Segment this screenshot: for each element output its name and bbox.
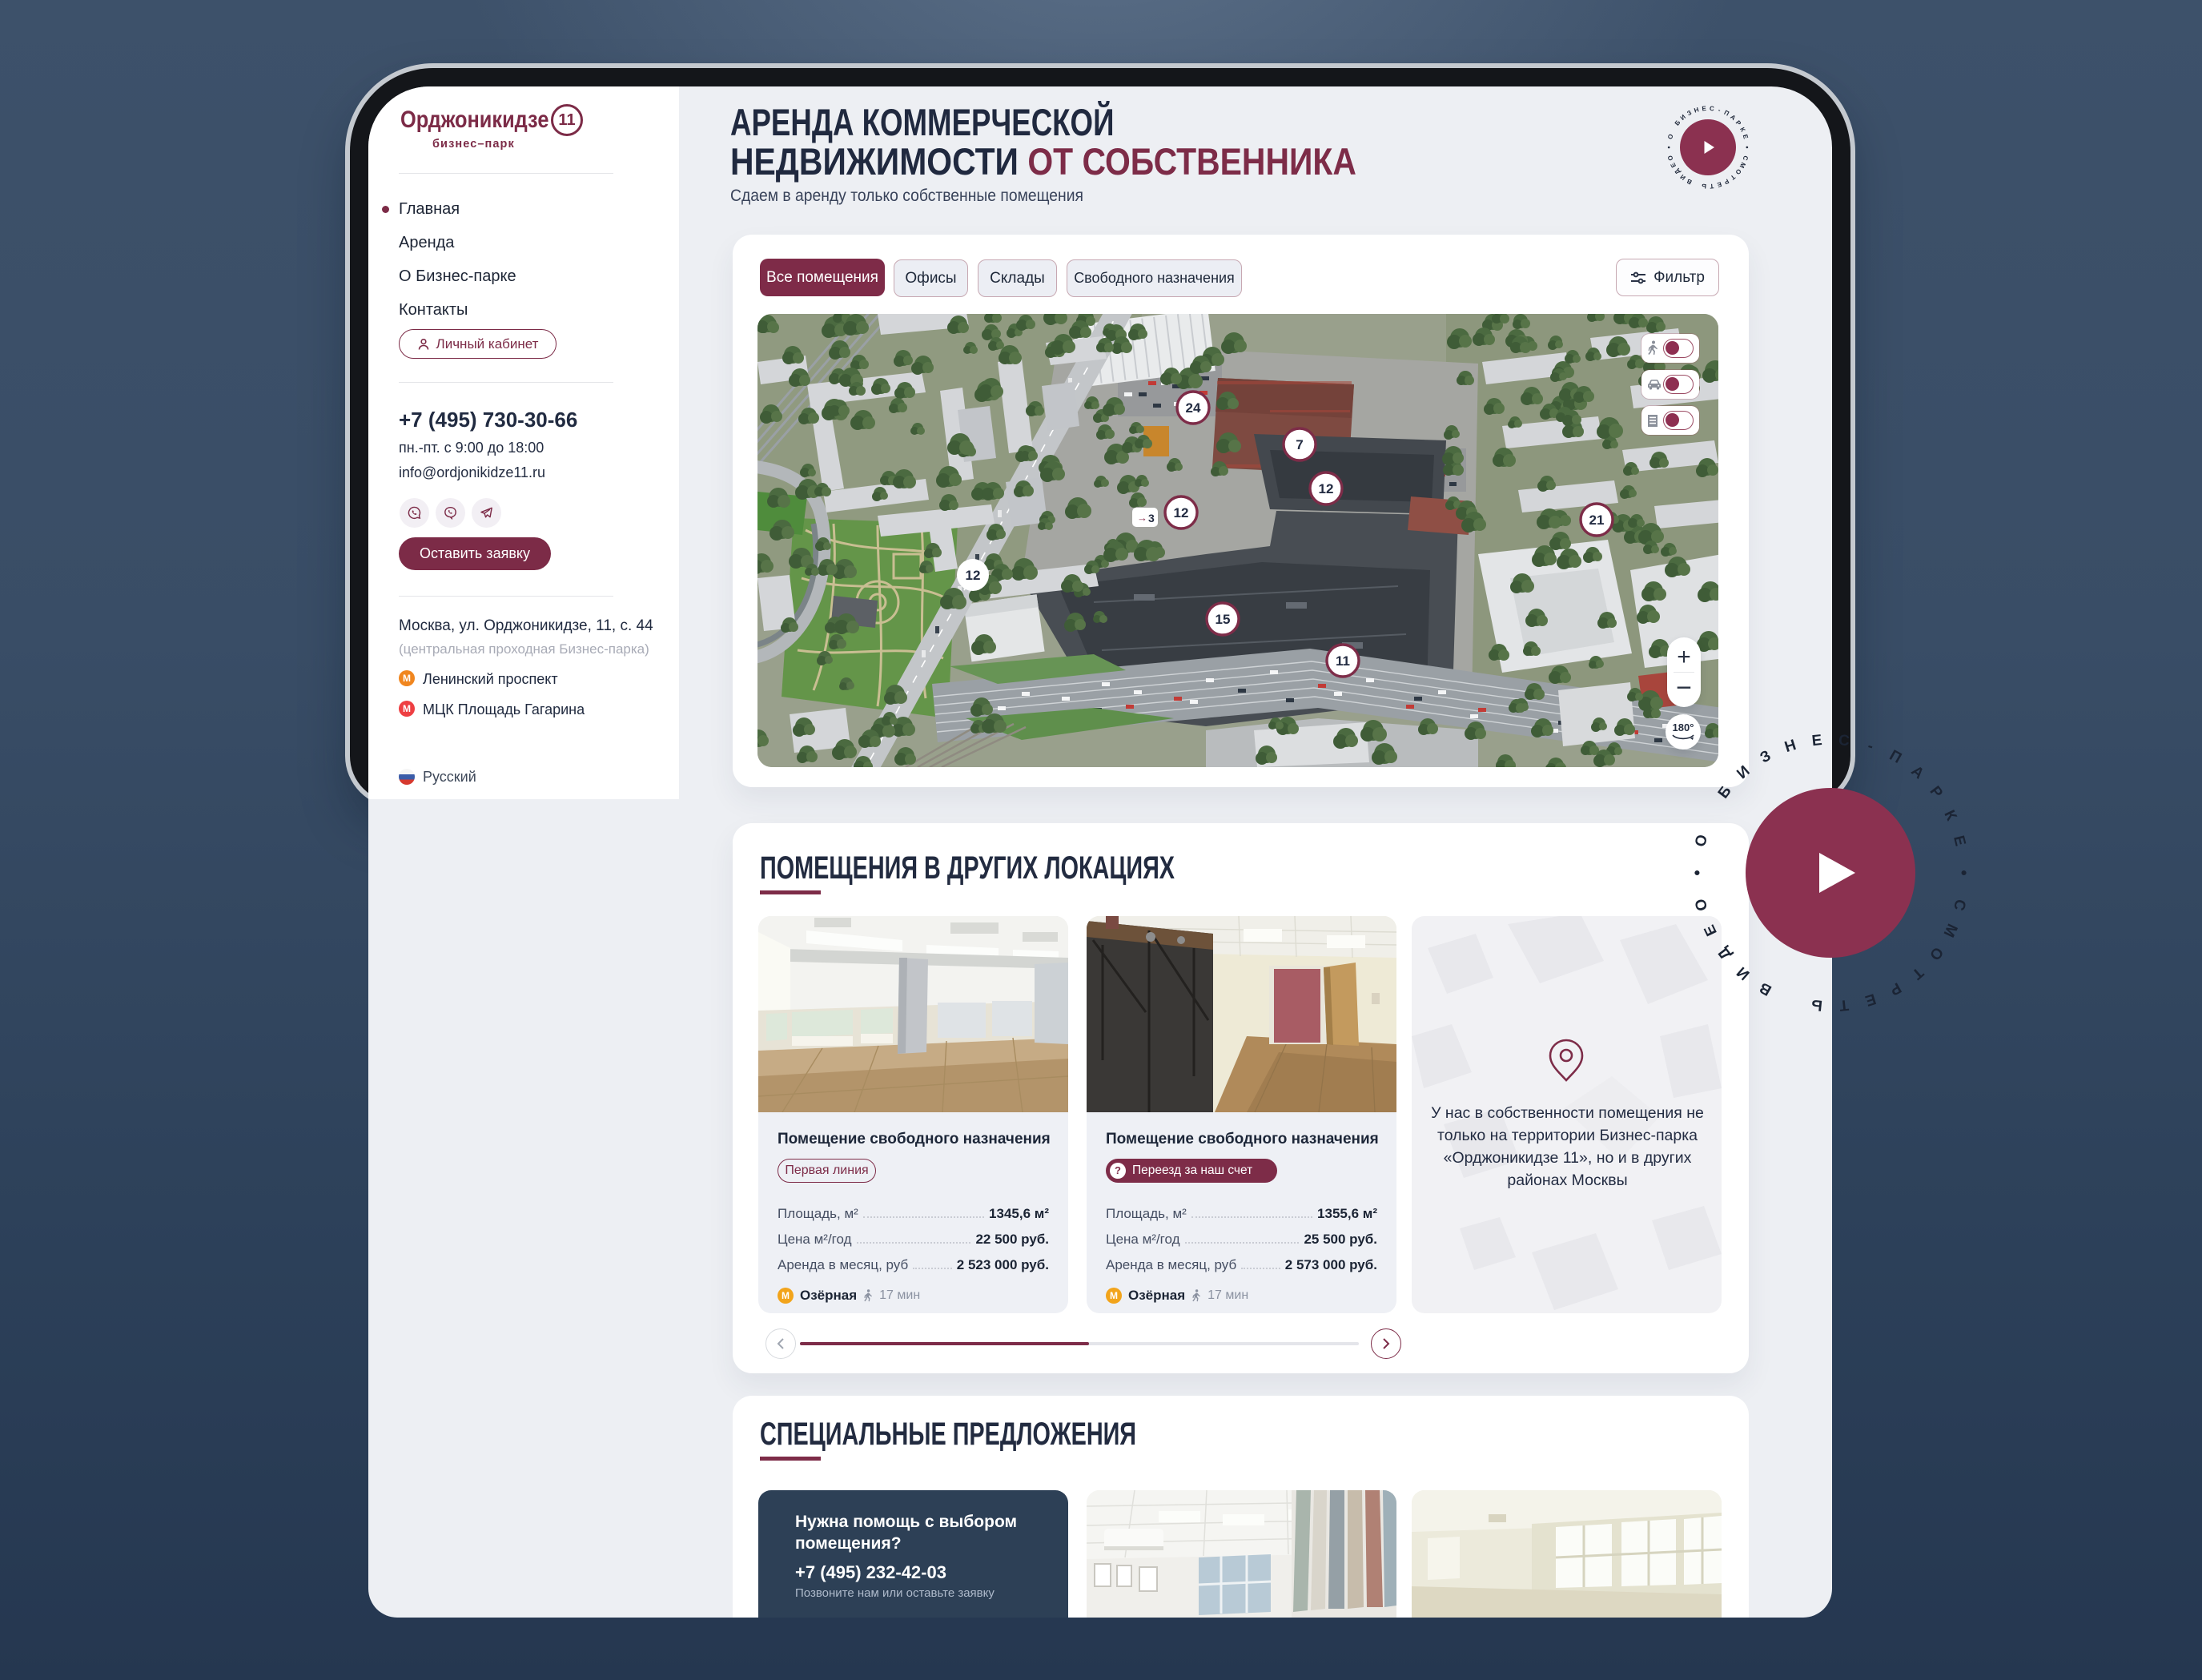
svg-text:С: С bbox=[1742, 155, 1750, 161]
svg-text:Е: Е bbox=[1716, 180, 1722, 188]
svg-text:О: О bbox=[1692, 833, 1711, 848]
svg-text:→: → bbox=[1137, 512, 1147, 524]
svg-text:12: 12 bbox=[966, 568, 981, 583]
svg-text:И: И bbox=[1679, 173, 1687, 182]
svg-text:Е: Е bbox=[1669, 161, 1678, 168]
svg-text:•: • bbox=[1689, 870, 1707, 875]
svg-text:Б: Б bbox=[1674, 119, 1682, 127]
svg-text:Д: Д bbox=[1715, 943, 1735, 963]
svg-text:24: 24 bbox=[1186, 400, 1201, 416]
svg-text:О: О bbox=[1734, 167, 1742, 175]
svg-text:•: • bbox=[1954, 870, 1972, 875]
svg-text:21: 21 bbox=[1589, 512, 1605, 528]
svg-text:Е: Е bbox=[1863, 990, 1878, 1009]
svg-text:П: П bbox=[1723, 109, 1731, 118]
svg-text:А: А bbox=[1908, 762, 1927, 782]
svg-text:Е: Е bbox=[1742, 134, 1750, 140]
svg-text:И: И bbox=[1734, 963, 1753, 983]
svg-text:М: М bbox=[1939, 921, 1960, 939]
svg-text:О: О bbox=[1666, 155, 1674, 161]
svg-text:-: - bbox=[1718, 107, 1722, 114]
svg-text:З: З bbox=[1686, 109, 1693, 117]
svg-text:П: П bbox=[1887, 747, 1904, 767]
svg-text:С: С bbox=[1710, 105, 1715, 113]
svg-text:Т: Т bbox=[1729, 173, 1737, 181]
svg-text:Ь: Ь bbox=[1810, 996, 1823, 1014]
svg-text:В: В bbox=[1757, 979, 1774, 999]
svg-text:Р: Р bbox=[1734, 119, 1743, 127]
svg-text:Е: Е bbox=[1702, 105, 1707, 113]
svg-text:Н: Н bbox=[1694, 106, 1700, 114]
svg-text:3: 3 bbox=[1148, 512, 1155, 524]
svg-text:З: З bbox=[1758, 747, 1774, 766]
svg-text:С: С bbox=[1950, 898, 1969, 913]
svg-text:Е: Е bbox=[1811, 732, 1823, 750]
svg-text:Ь: Ь bbox=[1702, 183, 1707, 191]
svg-text:15: 15 bbox=[1216, 612, 1231, 627]
svg-text:12: 12 bbox=[1174, 505, 1189, 520]
svg-text:Н: Н bbox=[1782, 737, 1798, 756]
svg-text:Р: Р bbox=[1927, 783, 1947, 802]
svg-text:Е: Е bbox=[1950, 834, 1968, 847]
svg-text:Д: Д bbox=[1674, 167, 1682, 175]
svg-text:К: К bbox=[1738, 126, 1746, 133]
svg-text:•: • bbox=[1665, 146, 1673, 148]
svg-text:12: 12 bbox=[1319, 481, 1334, 496]
svg-text:И: И bbox=[1734, 762, 1753, 782]
svg-text:Т: Т bbox=[1908, 963, 1927, 983]
svg-text:Т: Т bbox=[1710, 183, 1714, 190]
svg-text:С: С bbox=[1838, 732, 1850, 750]
svg-text:7: 7 bbox=[1296, 437, 1303, 452]
svg-text:О: О bbox=[1666, 133, 1674, 139]
svg-text:Т: Т bbox=[1838, 996, 1850, 1014]
svg-text:О: О bbox=[1926, 943, 1947, 963]
svg-text:•: • bbox=[1743, 146, 1751, 148]
svg-text:А: А bbox=[1729, 113, 1737, 122]
svg-text:К: К bbox=[1940, 807, 1959, 823]
svg-text:Р: Р bbox=[1722, 177, 1730, 186]
svg-text:О: О bbox=[1692, 897, 1711, 912]
svg-text:Е: Е bbox=[1701, 922, 1720, 938]
svg-text:11: 11 bbox=[1336, 653, 1350, 669]
svg-text:И: И bbox=[1679, 113, 1687, 122]
svg-text:Б: Б bbox=[1715, 783, 1735, 802]
svg-text:Р: Р bbox=[1887, 979, 1904, 999]
svg-text:-: - bbox=[1866, 738, 1875, 755]
svg-text:М: М bbox=[1738, 161, 1747, 169]
svg-text:В: В bbox=[1686, 177, 1694, 186]
